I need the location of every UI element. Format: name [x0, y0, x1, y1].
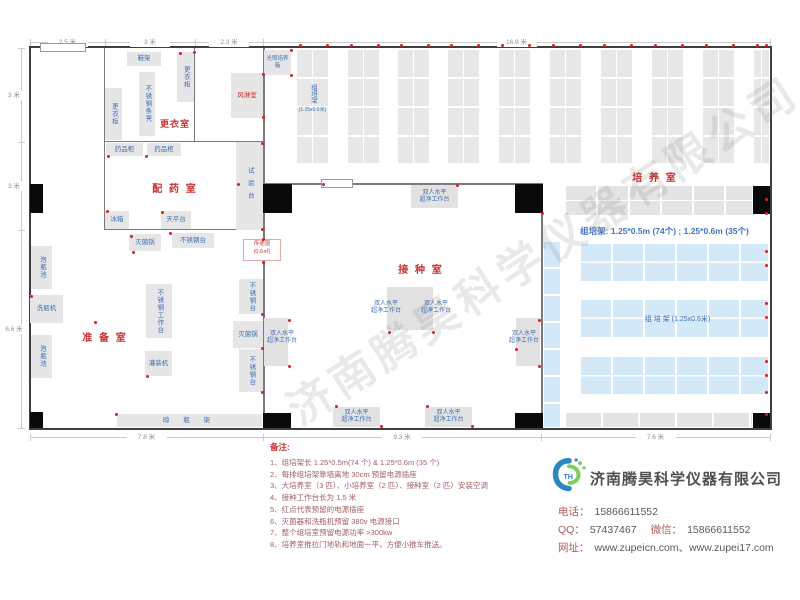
rack-label: 组 培 架 (1.25x0.6米)	[615, 314, 740, 324]
door-symbol	[40, 43, 86, 52]
power-outlet-dot	[322, 183, 325, 186]
structural-column	[30, 412, 43, 428]
power-outlet-dot	[193, 51, 196, 54]
power-outlet-dot	[765, 413, 768, 416]
power-outlet-dot	[538, 365, 541, 368]
power-outlet-dot	[290, 74, 293, 77]
dimension-label: 7.6 米	[636, 433, 676, 442]
structural-column	[515, 184, 543, 213]
power-outlet-dot	[427, 44, 430, 47]
equipment-box: 药品柜	[106, 143, 143, 156]
equipment-box: 洗瓶机	[30, 295, 63, 323]
power-outlet-dot	[426, 405, 429, 408]
equipment-box: 泡瓶池	[31, 246, 52, 289]
note-item: 8、培养室推拉门地轨和地面一平，方便小推车推送。	[270, 539, 548, 551]
power-outlet-dot	[432, 331, 435, 334]
power-outlet-dot	[528, 44, 531, 47]
power-outlet-dot	[477, 44, 480, 47]
power-outlet-dot	[380, 425, 383, 428]
note-item: 4、接种工作台长为 1.5 米	[270, 492, 548, 504]
company-info-panel: TH 济南腾昊科学仪器有限公司 电话：15866611552 QQ：574374…	[548, 452, 798, 562]
culture-rack-vertical	[448, 50, 479, 163]
power-outlet-dot	[262, 261, 265, 264]
culture-rack	[581, 244, 768, 281]
note-item: 3、大培养室（3 匹）、小培养室（2 匹）、接种室（2 匹）安装空调	[270, 480, 548, 492]
room-label: 更衣室	[130, 117, 220, 130]
dimension-label: 3 米	[1, 182, 27, 191]
power-outlet-dot	[130, 235, 133, 238]
company-qq-line: QQ：57437467微信：15866611552	[558, 522, 751, 537]
power-outlet-dot	[765, 264, 768, 267]
wall	[541, 184, 543, 428]
note-item: 5、红点代表预留的电源插座	[270, 504, 548, 516]
equipment-box: 天平台	[161, 211, 191, 229]
culture-rack-vertical	[348, 50, 379, 163]
dimension-tick	[263, 39, 264, 46]
dimension-tick	[195, 39, 196, 46]
equipment-box: 不锈钢台	[239, 349, 263, 392]
power-outlet-dot	[132, 251, 135, 254]
clean-bench-label: 双人水平超净工作台	[258, 331, 306, 345]
equipment-box: 晾 瓶 架	[117, 414, 262, 427]
power-outlet-dot	[765, 316, 768, 319]
power-outlet-dot	[288, 365, 291, 368]
equipment-box: 药品柜	[147, 143, 181, 156]
rack-spec-text: 组培架: 1.25*0.5m (74个) ; 1.25*0.6m (35个)	[572, 225, 757, 237]
svg-text:TH: TH	[563, 473, 572, 481]
room-label: 准 备 室	[60, 329, 150, 344]
clean-bench-label: 双人水平超净工作台	[332, 410, 381, 424]
power-outlet-dot	[515, 348, 518, 351]
web-label: 网址：	[558, 542, 590, 554]
power-outlet-dot	[262, 73, 265, 76]
dimension-tick	[770, 39, 771, 46]
dimension-label: 3 米	[1, 91, 27, 100]
power-outlet-dot	[765, 198, 768, 201]
culture-rack-vertical	[652, 50, 683, 163]
power-outlet-dot	[456, 184, 459, 187]
equipment-box: 灭菌锅	[129, 234, 161, 251]
dimension-label: 7.8 米	[127, 433, 167, 442]
phone-label: 电话：	[558, 506, 590, 518]
power-outlet-dot	[552, 44, 555, 47]
dimension-tick	[541, 434, 542, 441]
company-web-line: 网址：www.zupeicn.com、www.zupei17.com	[558, 540, 774, 555]
power-outlet-dot	[106, 210, 109, 213]
dimension-tick	[18, 48, 25, 49]
power-outlet-dot	[261, 313, 264, 316]
equipment-box: 更衣柜	[105, 88, 122, 140]
power-outlet-dot	[450, 44, 453, 47]
power-outlet-dot	[603, 44, 606, 47]
power-outlet-dot	[145, 155, 148, 158]
clean-bench-label: 双人水平超净工作台	[424, 410, 473, 424]
notes-title: 备注:	[270, 441, 548, 453]
power-outlet-dot	[654, 44, 657, 47]
structural-column	[30, 184, 43, 213]
power-outlet-dot	[290, 49, 293, 52]
power-outlet-dot	[765, 360, 768, 363]
structural-column	[515, 413, 543, 428]
power-outlet-dot	[765, 44, 768, 47]
power-outlet-dot	[765, 391, 768, 394]
clean-bench-label: 双人水平超净工作台	[410, 190, 459, 204]
room-label: 配 药 室	[130, 180, 220, 195]
clean-bench-label: 双人水平超净工作台	[412, 301, 460, 315]
equipment-box: 冰箱	[105, 211, 129, 229]
company-name: 济南腾昊科学仪器有限公司	[590, 468, 782, 489]
power-outlet-dot	[765, 302, 768, 305]
power-outlet-dot	[630, 44, 633, 47]
power-outlet-dot	[681, 44, 684, 47]
wechat-value: 15866611552	[687, 524, 750, 536]
power-outlet-dot	[261, 391, 264, 394]
power-outlet-dot	[262, 116, 265, 119]
company-logo: TH	[550, 452, 588, 503]
dimension-tick	[105, 39, 106, 46]
equipment-box: 更衣柜	[177, 52, 194, 102]
room-label: 培 养 室	[610, 169, 700, 184]
equipment-box: 不锈钢台	[239, 279, 263, 314]
notes-panel: 备注: 1、组培架长 1.25*0.5m(74 个) & 1.25*0.6m (…	[270, 441, 548, 551]
power-outlet-dot	[765, 250, 768, 253]
power-outlet-dot	[326, 44, 329, 47]
power-outlet-dot	[107, 155, 110, 158]
equipment-box: 泡瓶池	[31, 335, 52, 378]
power-outlet-dot	[179, 52, 182, 55]
culture-rack-vertical	[601, 50, 632, 163]
qq-label: QQ：	[558, 524, 585, 536]
power-outlet-dot	[262, 238, 265, 241]
company-phone-line: 电话：15866611552	[558, 504, 658, 519]
power-outlet-dot	[350, 44, 353, 47]
power-outlet-dot	[30, 295, 33, 298]
equipment-box: 光照培养箱	[264, 50, 291, 75]
phone-value: 15866611552	[595, 506, 658, 518]
clean-bench-label: 双人水平超净工作台	[500, 331, 548, 345]
power-outlet-dot	[579, 44, 582, 47]
power-outlet-dot	[237, 183, 240, 186]
wechat-label: 微信：	[651, 524, 683, 536]
clean-bench-label: 双人水平超净工作台	[362, 301, 410, 315]
power-outlet-dot	[115, 413, 118, 416]
culture-rack	[566, 413, 752, 427]
power-outlet-dot	[765, 374, 768, 377]
dimension-label: 6.6 米	[1, 325, 27, 334]
rack-spec-label: 组培架(1.25x0.5米)	[294, 84, 331, 113]
structural-column	[263, 184, 292, 213]
power-outlet-dot	[538, 319, 541, 322]
note-item: 2、每排组培架靠墙离地 30cm 预留电源插座	[270, 469, 548, 481]
note-item: 1、组培架长 1.25*0.5m(74 个) & 1.25*0.6m (35 个…	[270, 457, 548, 469]
power-outlet-dot	[377, 44, 380, 47]
power-outlet-dot	[161, 211, 164, 214]
note-item: 7、整个组培室预留电源功率 >300kw	[270, 527, 548, 539]
qq-value: 57437467	[590, 524, 637, 536]
power-outlet-dot	[705, 44, 708, 47]
pass-window: 传递窗(0.6㎡)	[243, 239, 281, 261]
power-outlet-dot	[501, 44, 504, 47]
web-value: www.zupeicn.com、www.zupei17.com	[595, 542, 774, 554]
power-outlet-dot	[261, 347, 264, 350]
culture-rack-vertical	[754, 50, 769, 163]
dimension-tick	[18, 230, 25, 231]
dimension-line-left	[21, 48, 22, 428]
equipment-box: 鞋架	[127, 52, 161, 66]
dimension-tick	[18, 428, 25, 429]
power-outlet-dot	[541, 212, 544, 215]
room-label: 接 种 室	[376, 261, 466, 276]
equipment-box: 灌装机	[145, 351, 172, 376]
dimension-tick	[30, 434, 31, 441]
power-outlet-dot	[261, 228, 264, 231]
dimension-tick	[18, 142, 25, 143]
culture-rack	[566, 186, 752, 215]
power-outlet-dot	[261, 142, 264, 145]
culture-rack-vertical	[703, 50, 734, 163]
power-outlet-dot	[765, 212, 768, 215]
dimension-tick	[30, 39, 31, 46]
power-outlet-dot	[732, 44, 735, 47]
power-outlet-dot	[471, 425, 474, 428]
dimension-label: 3 米	[130, 38, 170, 47]
door-symbol	[321, 179, 353, 188]
equipment-box: 试验台	[236, 142, 263, 230]
dimension-label: 2.3 米	[209, 38, 249, 47]
dimension-tick	[263, 434, 264, 441]
power-outlet-dot	[299, 44, 302, 47]
equipment-box: 不锈钢台	[172, 233, 214, 248]
culture-rack	[581, 357, 768, 394]
culture-rack-vertical	[550, 50, 581, 163]
power-outlet-dot	[146, 375, 149, 378]
note-item: 6、灭菌器和洗瓶机预留 380v 电源接口	[270, 516, 548, 528]
dimension-tick	[770, 434, 771, 441]
power-outlet-dot	[335, 405, 338, 408]
power-outlet-dot	[94, 321, 97, 324]
equipment-box: 风淋室	[231, 73, 263, 118]
structural-column	[263, 413, 291, 428]
power-outlet-dot	[169, 232, 172, 235]
power-outlet-dot	[756, 44, 759, 47]
wall	[263, 183, 543, 185]
power-outlet-dot	[400, 44, 403, 47]
culture-rack-vertical	[499, 50, 530, 163]
power-outlet-dot	[388, 331, 391, 334]
power-outlet-dot	[288, 319, 291, 322]
culture-rack-vertical	[398, 50, 429, 163]
